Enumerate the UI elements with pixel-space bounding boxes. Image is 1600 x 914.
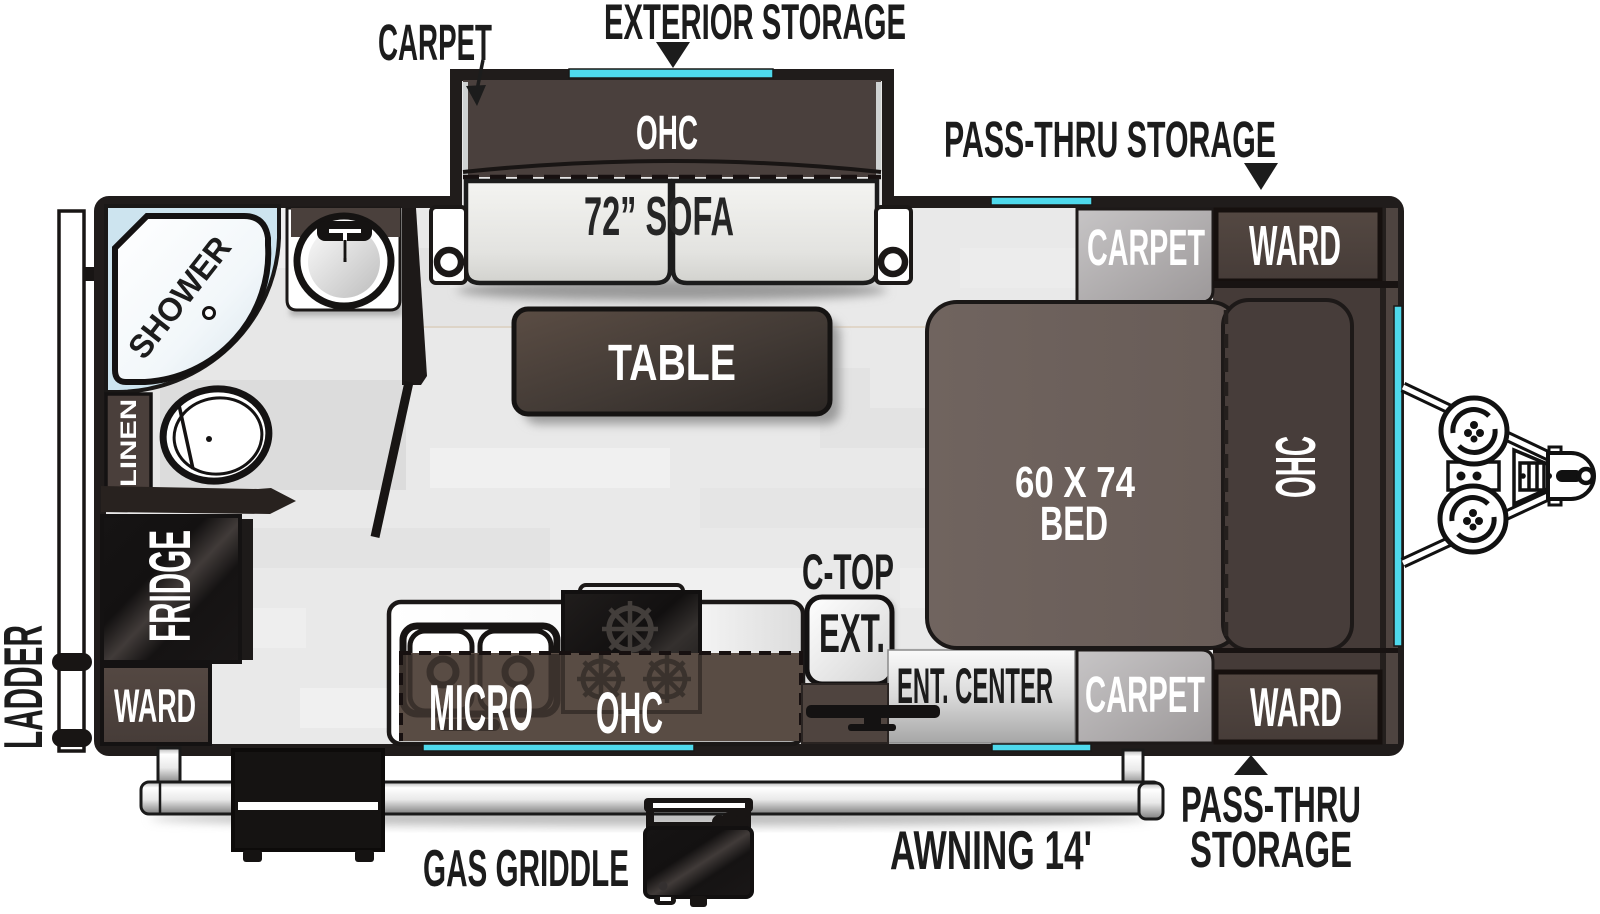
svg-text:TABLE: TABLE <box>608 334 736 391</box>
svg-text:ENT. CENTER: ENT. CENTER <box>897 658 1053 714</box>
svg-text:OHC: OHC <box>1264 436 1328 498</box>
svg-text:EXT.: EXT. <box>819 602 885 664</box>
svg-text:LADDER: LADDER <box>0 625 54 749</box>
svg-text:BED: BED <box>1040 498 1108 551</box>
svg-text:CARPET: CARPET <box>378 14 492 71</box>
svg-text:WARD: WARD <box>1249 214 1341 278</box>
svg-text:C-TOP: C-TOP <box>802 544 894 600</box>
svg-text:CARPET: CARPET <box>1085 666 1205 723</box>
svg-text:EXTERIOR STORAGE: EXTERIOR STORAGE <box>604 0 906 50</box>
svg-text:MICRO: MICRO <box>429 671 533 744</box>
svg-text:OHC: OHC <box>636 107 698 160</box>
svg-text:CARPET: CARPET <box>1087 219 1205 276</box>
svg-text:WARD: WARD <box>1250 676 1342 738</box>
svg-text:WARD: WARD <box>114 679 196 732</box>
svg-text:AWNING 14': AWNING 14' <box>890 819 1092 881</box>
svg-text:LINEN: LINEN <box>116 399 141 487</box>
svg-text:GAS GRIDDLE: GAS GRIDDLE <box>423 840 629 898</box>
svg-text:72” SOFA: 72” SOFA <box>584 185 734 247</box>
svg-text:FRIDGE: FRIDGE <box>138 530 203 642</box>
svg-text:OHC: OHC <box>596 681 663 746</box>
svg-text:STORAGE: STORAGE <box>1190 821 1352 878</box>
svg-text:PASS-THRU STORAGE: PASS-THRU STORAGE <box>944 111 1276 168</box>
